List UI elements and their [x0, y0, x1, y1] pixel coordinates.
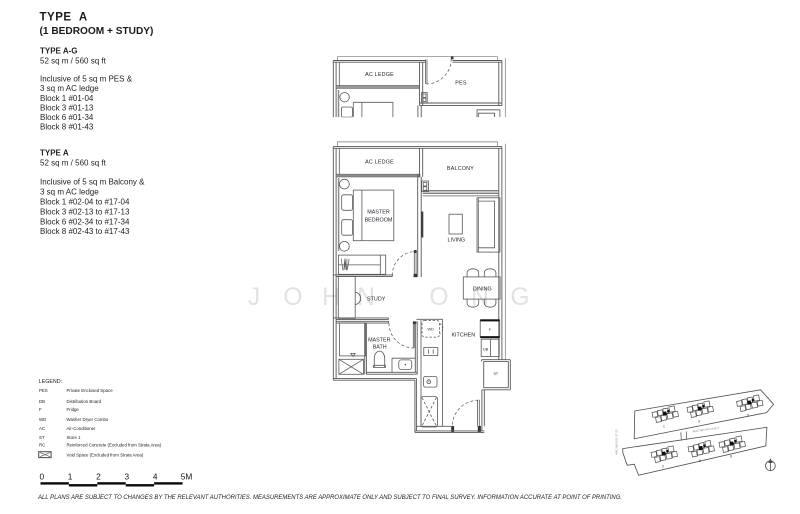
svg-text:Private Enclosed Space: Private Enclosed Space	[67, 388, 114, 393]
svg-text:Block 3 #02-13 to #17-13: Block 3 #02-13 to #17-13	[40, 207, 130, 216]
svg-text:AC: AC	[39, 426, 45, 431]
svg-text:O: O	[429, 284, 448, 311]
svg-text:Fridge: Fridge	[67, 407, 80, 412]
svg-text:Washer Dryer Combo: Washer Dryer Combo	[67, 417, 109, 422]
svg-text:5: 5	[747, 414, 749, 418]
svg-text:Block 6 #02-34 to #17-34: Block 6 #02-34 to #17-34	[40, 217, 130, 226]
svg-text:2: 2	[662, 465, 664, 469]
svg-text:Inclusive of 5 sq m PES &: Inclusive of 5 sq m PES &	[40, 75, 133, 84]
svg-text:Distribution Board: Distribution Board	[67, 399, 102, 404]
svg-text:LEGEND:: LEGEND:	[39, 379, 62, 385]
svg-text:8: 8	[730, 455, 732, 459]
svg-text:ST: ST	[39, 435, 45, 440]
svg-text:F: F	[39, 407, 42, 412]
svg-text:O: O	[283, 284, 302, 311]
svg-text:3: 3	[698, 420, 700, 424]
svg-text:Inclusive of 5 sq m Balcony &: Inclusive of 5 sq m Balcony &	[40, 178, 145, 187]
svg-text:PES: PES	[455, 81, 467, 87]
svg-text:AC LEDGE: AC LEDGE	[365, 160, 394, 166]
svg-text:ANG MO KIO ST 52: ANG MO KIO ST 52	[615, 429, 619, 455]
svg-text:TYPE A: TYPE A	[40, 12, 88, 24]
svg-text:Air-Conditioner: Air-Conditioner	[67, 426, 97, 431]
svg-text:Store 1: Store 1	[67, 435, 82, 440]
svg-text:BATH: BATH	[373, 344, 387, 350]
svg-text:J: J	[248, 284, 260, 311]
svg-text:RC: RC	[39, 442, 45, 447]
svg-text:1: 1	[68, 472, 73, 482]
svg-text:DINING: DINING	[473, 287, 492, 293]
svg-text:DB: DB	[483, 348, 489, 352]
svg-text:Block 8 #01-43: Block 8 #01-43	[40, 123, 94, 132]
svg-text:Block 1 #02-04 to #17-04: Block 1 #02-04 to #17-04	[40, 197, 130, 206]
svg-text:AC LEDGE: AC LEDGE	[365, 72, 394, 78]
svg-text:Block 1 #01-04: Block 1 #01-04	[40, 94, 94, 103]
svg-text:Void Space (Excluded from Stra: Void Space (Excluded from Strata Area)	[67, 453, 144, 458]
svg-text:3: 3	[124, 472, 129, 482]
svg-text:LIVING: LIVING	[447, 238, 465, 244]
svg-text:6: 6	[699, 459, 701, 463]
svg-text:52 sq m / 560 sq ft: 52 sq m / 560 sq ft	[40, 158, 107, 167]
svg-text:0: 0	[39, 472, 44, 482]
svg-text:4: 4	[153, 472, 158, 482]
svg-text:52 sq m / 560 sq ft: 52 sq m / 560 sq ft	[40, 57, 107, 66]
svg-text:1: 1	[663, 425, 665, 429]
svg-text:KITCHEN: KITCHEN	[451, 332, 475, 338]
svg-text:ST: ST	[493, 372, 498, 376]
svg-text:TYPE A-G: TYPE A-G	[40, 47, 77, 56]
svg-text:Block 3 #01-13: Block 3 #01-13	[40, 103, 94, 112]
svg-text:5M: 5M	[181, 472, 193, 482]
svg-text:Block 8 #02-43 to #17-43: Block 8 #02-43 to #17-43	[40, 227, 130, 236]
svg-text:MASTER: MASTER	[368, 338, 391, 344]
svg-text:WD: WD	[39, 417, 46, 422]
svg-text:BEDROOM: BEDROOM	[365, 218, 393, 224]
svg-text:TYPE A: TYPE A	[40, 148, 69, 157]
svg-text:MASTER: MASTER	[367, 209, 390, 215]
svg-text:Block 6 #01-34: Block 6 #01-34	[40, 113, 94, 122]
svg-text:DB: DB	[39, 399, 45, 404]
svg-text:3 sq m AC ledge: 3 sq m AC ledge	[40, 187, 99, 196]
svg-text:3 sq m AC ledge: 3 sq m AC ledge	[40, 84, 99, 93]
svg-text:ALL PLANS ARE SUBJECT TO CHANG: ALL PLANS ARE SUBJECT TO CHANGES BY THE …	[37, 495, 622, 501]
svg-text:H: H	[322, 284, 340, 311]
svg-text:2: 2	[96, 472, 101, 482]
svg-text:BALCONY: BALCONY	[447, 166, 474, 172]
svg-text:WD: WD	[428, 328, 434, 332]
svg-text:STUDY: STUDY	[367, 297, 386, 303]
svg-text:(1 BEDROOM + STUDY): (1 BEDROOM + STUDY)	[40, 26, 154, 37]
svg-text:Reinforced Concrete (Excluded: Reinforced Concrete (Excluded from Strat…	[67, 442, 162, 447]
svg-text:PES: PES	[39, 388, 48, 393]
svg-text:G: G	[510, 284, 529, 311]
